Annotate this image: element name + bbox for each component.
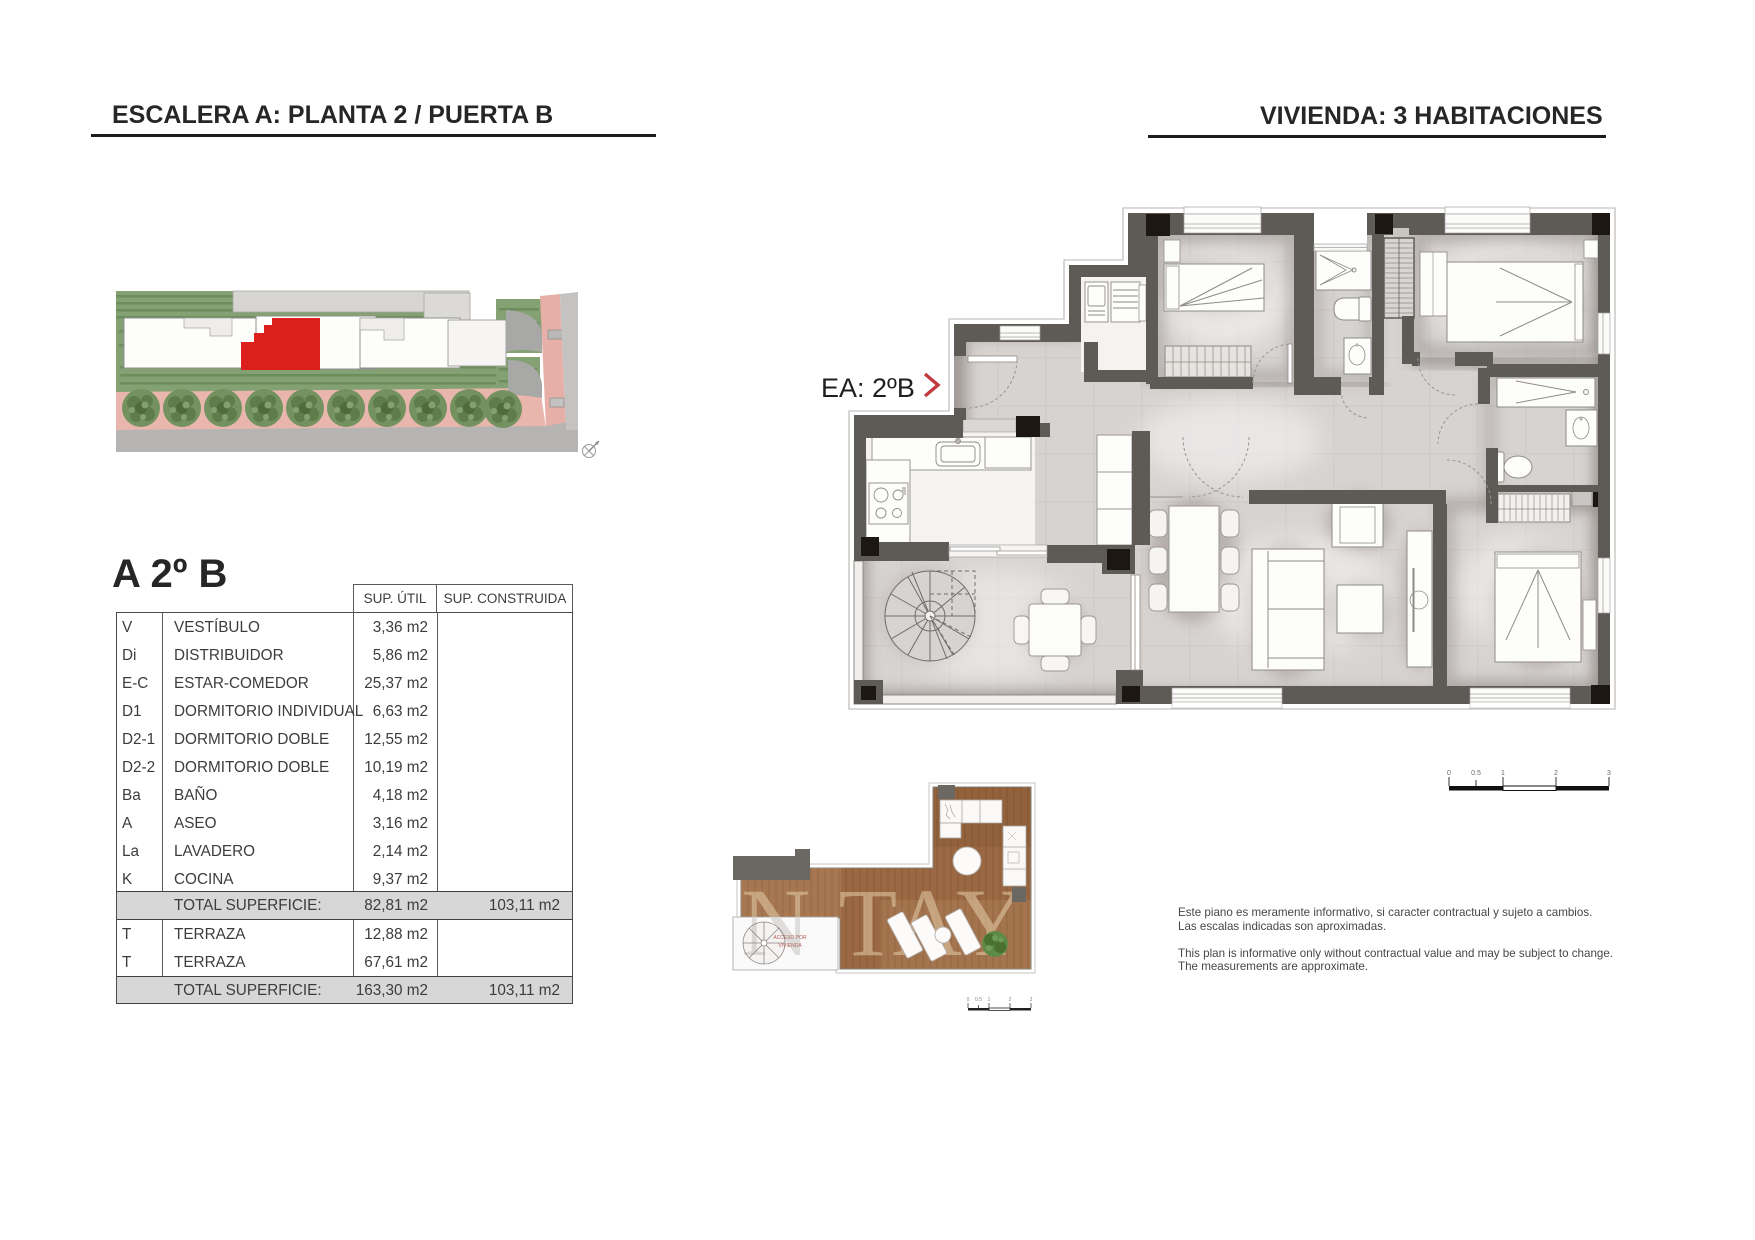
- svg-text:0: 0: [967, 997, 970, 1003]
- svg-text:1: 1: [988, 997, 991, 1003]
- svg-text:2: 2: [1554, 770, 1558, 777]
- svg-text:0: 0: [1447, 770, 1451, 777]
- svg-text:3: 3: [1607, 770, 1611, 777]
- svg-text:1: 1: [1501, 770, 1505, 777]
- svg-text:0.5: 0.5: [975, 997, 982, 1003]
- svg-text:3: 3: [1030, 997, 1033, 1003]
- svg-text:2: 2: [1009, 997, 1012, 1003]
- svg-text:0.5: 0.5: [1471, 770, 1481, 777]
